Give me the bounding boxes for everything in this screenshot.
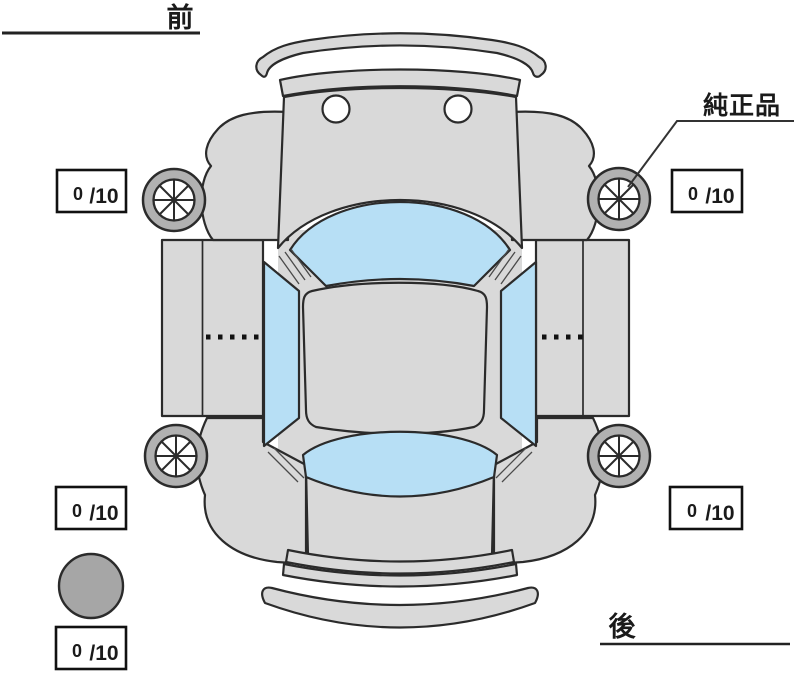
front-left-fender (201, 112, 288, 240)
tread-denom-rear-left: /10 (89, 502, 118, 525)
right-side-window-glass (501, 262, 536, 446)
tread-denom-front-right: /10 (705, 185, 734, 208)
left-side-window-glass (264, 262, 299, 446)
tread-box-spare: 0 /10 (56, 627, 126, 669)
tread-value-spare: 0 (72, 641, 82, 661)
tread-denom-rear-right: /10 (705, 502, 734, 525)
tread-value-rear-left: 0 (72, 501, 82, 521)
wheel-rear-left (145, 425, 207, 487)
car-top-view-canvas: 前 後 純正品 0 /10 0 /10 0 /10 0 /10 (0, 0, 800, 675)
genuine-part-label: 純正品 (703, 91, 781, 120)
tread-value-front-left: 0 (73, 184, 83, 204)
right-door-panels (530, 240, 629, 416)
vehicle-inspection-diagram: 前 後 純正品 0 /10 0 /10 0 /10 0 /10 (0, 0, 800, 675)
left-door-panels (162, 240, 263, 416)
tread-box-front-left: 0 /10 (57, 170, 126, 212)
tread-box-front-right: 0 /10 (672, 170, 742, 212)
tread-box-rear-left: 0 /10 (56, 487, 126, 529)
wheel-rear-right (588, 425, 650, 487)
tread-box-rear-right: 0 /10 (670, 487, 742, 529)
tread-value-front-right: 0 (688, 184, 698, 204)
rear-label: 後 (609, 612, 637, 642)
front-label: 前 (167, 2, 194, 33)
front-right-fender (512, 112, 599, 240)
right-headlight (445, 96, 472, 123)
rear-bumper (262, 588, 538, 628)
tread-denom-spare: /10 (89, 642, 118, 665)
tread-value-rear-right: 0 (687, 501, 697, 521)
wheel-front-left (143, 169, 205, 231)
roof-panel (303, 283, 487, 434)
left-headlight (323, 96, 350, 123)
rear-window-glass (303, 432, 497, 497)
wheel-front-right (588, 168, 650, 230)
tread-denom-front-left: /10 (89, 185, 118, 208)
left-door-block (162, 240, 263, 416)
spare-tire-circle (59, 554, 123, 618)
